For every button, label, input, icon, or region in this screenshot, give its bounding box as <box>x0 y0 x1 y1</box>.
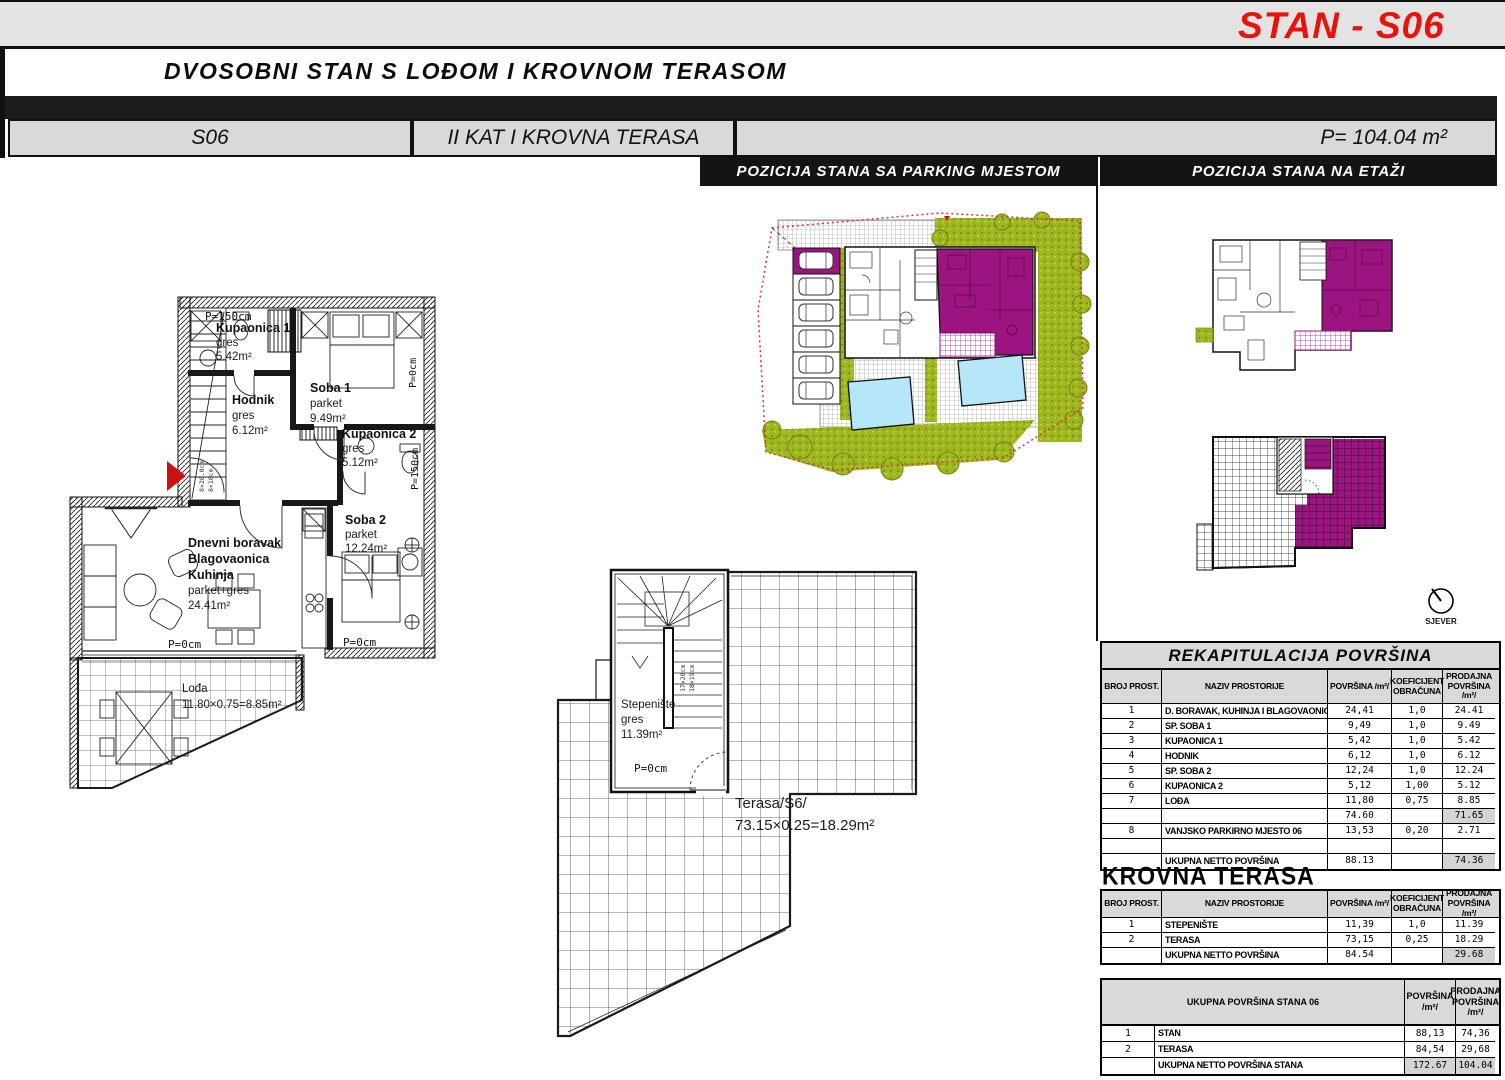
compass-label: SJEVER <box>1425 617 1457 626</box>
svg-text:5.12m²: 5.12m² <box>342 457 378 469</box>
table-row: 7LOĐA 11,800,75 8.85 <box>1102 794 1499 809</box>
table-row: 1STAN 88,1374,36 <box>1102 1026 1499 1042</box>
table-row: 1STEPENIŠTE 11,391,0 11.39 <box>1102 918 1499 933</box>
svg-text:5.42m²: 5.42m² <box>216 351 252 363</box>
svg-text:24.41m²: 24.41m² <box>188 600 230 612</box>
room-terasa: Terasa/S6/ <box>735 795 808 812</box>
rekap-header: BROJ PROST. NAZIV PROSTORIJE POVRŠINA /m… <box>1102 670 1499 704</box>
plan-sheet: P=150cm Kupaonica 1 gres 5.42m² Hodnik g… <box>0 0 1505 1080</box>
room-soba1: Soba 1 <box>310 381 351 395</box>
unit-cell: S06 <box>8 119 412 157</box>
svg-text:73.15×0.25=18.29m²: 73.15×0.25=18.29m² <box>735 817 874 834</box>
table-row: 5SP. SOBA 2 12,241,0 12.24 <box>1102 764 1499 779</box>
stair-dim-2: 8×18cm <box>207 468 215 492</box>
roof-terrace-plan: Stepenište gres 11.39m² P=0cm 17×28cm 18… <box>558 570 916 1036</box>
svg-text:parket: parket <box>310 398 343 410</box>
svg-text:11.80×0.75=8.85m²: 11.80×0.75=8.85m² <box>182 699 282 711</box>
floor-cell: II KAT I KROVNA TERASA <box>412 119 735 157</box>
table-row: 2SP. SOBA 1 9,491,0 9.49 <box>1102 719 1499 734</box>
stair-dim-1: 8×28.0cm <box>198 461 206 492</box>
section-etaza: POZICIJA STANA NA ETAŽI <box>1100 157 1497 186</box>
rekapitulacija-table: REKAPITULACIJA POVRŠINA BROJ PROST. NAZI… <box>1100 641 1501 871</box>
room-kupaonica2: Kupaonica 2 <box>342 427 416 441</box>
krovna-terasa-table: BROJ PROST. NAZIV PROSTORIJE POVRŠINA /m… <box>1100 889 1501 965</box>
empty-row <box>1102 839 1499 854</box>
etage-plan-roof <box>1197 437 1385 570</box>
area-cell: P= 104.04 m² <box>735 119 1497 157</box>
left-edge-rule <box>0 49 5 158</box>
subtitle: DVOSOBNI STAN S LOĐOM I KROVNOM TERASOM <box>164 58 787 85</box>
svg-text:gres: gres <box>621 714 644 726</box>
etage-plan-floor <box>1196 240 1392 370</box>
room-dnevni: Dnevni boravak <box>188 536 281 550</box>
ukupna-header: UKUPNA POVRŠINA STANA 06 POVRŠINA /m²/ P… <box>1102 980 1499 1026</box>
label-p150-right: P=150cm <box>410 448 421 490</box>
main-floor-plan: P=150cm Kupaonica 1 gres 5.42m² Hodnik g… <box>70 297 435 788</box>
rekap-title: REKAPITULACIJA POVRŠINA <box>1102 643 1499 670</box>
room-kupaonica1: Kupaonica 1 <box>216 321 290 335</box>
svg-text:12.24m²: 12.24m² <box>345 543 387 555</box>
site-plan <box>758 212 1091 480</box>
svg-text:gres: gres <box>232 410 255 422</box>
section-parking: POZICIJA STANA SA PARKING MJESTOM <box>700 157 1097 186</box>
room-hodnik: Hodnik <box>232 393 274 407</box>
room-soba2: Soba 2 <box>345 513 386 527</box>
black-band <box>0 96 1497 119</box>
svg-text:Blagovaonica: Blagovaonica <box>188 552 270 566</box>
svg-text:11.39m²: 11.39m² <box>621 729 663 741</box>
svg-text:parket: parket <box>345 529 378 541</box>
label-terrace-p0: P=0cm <box>634 762 667 775</box>
svg-text:9.49m²: 9.49m² <box>310 413 346 425</box>
table-row: 1D. BORAVAK, KUHINJA I BLAGOVAONICA 24,4… <box>1102 704 1499 719</box>
svg-text:6.12m²: 6.12m² <box>232 425 268 437</box>
total-row: UKUPNA NETTO POVRŠINA 84.54 29.68 <box>1102 948 1499 963</box>
terrace-stair-dim-2: 18×19cm <box>688 665 696 692</box>
krovna-header: BROJ PROST. NAZIV PROSTORIJE POVRŠINA /m… <box>1102 891 1499 918</box>
compass-icon: SJEVER <box>1425 589 1457 626</box>
label-p0-soba2: P=0cm <box>343 636 376 649</box>
table-row: 4HODNIK 6,121,0 6.12 <box>1102 749 1499 764</box>
table-row: 6KUPAONICA 2 5,121,00 5.12 <box>1102 779 1499 794</box>
table-row: 2TERASA 73,150,25 18.29 <box>1102 933 1499 948</box>
subtotal-row: 74.60 71.65 <box>1102 809 1499 824</box>
table-row: 3KUPAONICA 1 5,421,0 5.42 <box>1102 734 1499 749</box>
krovna-terasa-heading: KROVNA TERASA <box>1102 862 1315 891</box>
room-lodja: Lođa <box>182 683 208 695</box>
table-row: 8VANJSKO PARKIRNO MJESTO 06 13,530,20 2.… <box>1102 824 1499 839</box>
table-row: 2TERASA 84,5429,68 <box>1102 1042 1499 1058</box>
svg-text:gres: gres <box>216 337 239 349</box>
label-p0-living: P=0cm <box>168 638 201 651</box>
svg-text:parket+gres: parket+gres <box>188 585 249 597</box>
total-row: UKUPNA NETTO POVRŠINA STANA 172.67104.04 <box>1102 1058 1499 1074</box>
svg-text:gres: gres <box>342 443 365 455</box>
stan-title: STAN - S06 <box>1238 4 1468 48</box>
ukupna-table: UKUPNA POVRŠINA STANA 06 POVRŠINA /m²/ P… <box>1100 978 1501 1076</box>
svg-text:Kuhinja: Kuhinja <box>188 568 235 582</box>
room-stepeniste: Stepenište <box>621 699 675 711</box>
terrace-stair-dim-1: 17×28cm <box>679 665 687 692</box>
label-p0-right: P=0cm <box>408 358 419 388</box>
